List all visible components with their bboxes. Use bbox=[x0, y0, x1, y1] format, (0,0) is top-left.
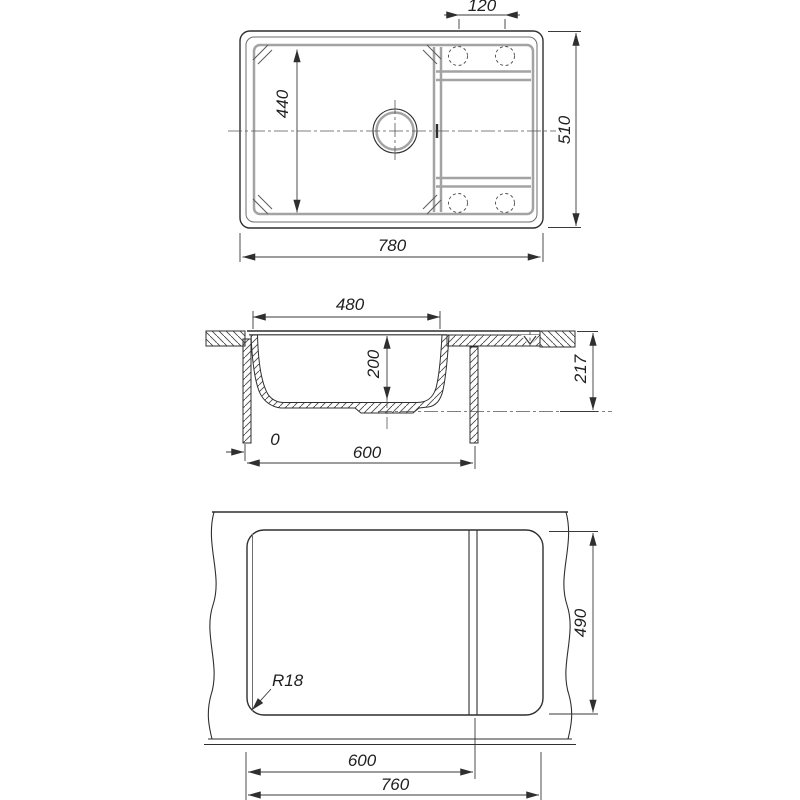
break-line-left bbox=[208, 512, 216, 739]
dim-overall-length: 780 bbox=[240, 233, 543, 262]
countertop-left bbox=[206, 331, 245, 346]
drainboard-grooves bbox=[436, 72, 531, 187]
sink-rim-edge bbox=[246, 37, 537, 222]
dim-zero-offset: 0 bbox=[226, 430, 280, 461]
dim-label-600-fold: 600 bbox=[348, 751, 377, 770]
countertop-right bbox=[540, 331, 575, 347]
bottom-view: R18 490 600 760 bbox=[204, 512, 598, 800]
bowl-section-profile bbox=[251, 335, 449, 413]
cabinet-wall-left bbox=[243, 339, 251, 443]
technical-drawing-canvas: 120 440 510 780 bbox=[0, 0, 800, 800]
dim-label-490: 490 bbox=[571, 608, 590, 637]
dim-label-480: 480 bbox=[336, 295, 365, 314]
sink-outer-contour bbox=[240, 31, 543, 228]
dim-footprint-width: 760 bbox=[248, 752, 541, 800]
dim-label-200: 200 bbox=[364, 349, 383, 379]
dim-label-440: 440 bbox=[273, 89, 292, 118]
dim-fold-width: 600 bbox=[246, 718, 475, 800]
section-view: 480 200 217 0 600 bbox=[206, 295, 612, 469]
dim-label-r18: R18 bbox=[272, 671, 304, 690]
sink-drawing-svg: 120 440 510 780 bbox=[0, 0, 800, 800]
dim-label-760: 760 bbox=[381, 775, 410, 794]
dim-bowl-top-width: 480 bbox=[253, 295, 440, 329]
dim-label-120: 120 bbox=[468, 0, 497, 15]
dim-label-780: 780 bbox=[378, 236, 407, 255]
top-view: 120 440 510 780 bbox=[228, 0, 581, 262]
dim-tap-spacing: 120 bbox=[444, 0, 520, 29]
cabinet-wall-right bbox=[470, 347, 478, 443]
dim-overall-width: 510 bbox=[548, 32, 581, 228]
dim-cabinet-width: 600 bbox=[247, 443, 475, 469]
dim-corner-radius: R18 bbox=[252, 671, 304, 710]
dim-bowl-depth: 200 bbox=[364, 336, 387, 400]
dim-label-510: 510 bbox=[555, 115, 574, 144]
dim-cutout-depth: 490 bbox=[549, 532, 598, 715]
dim-label-600-cabinet: 600 bbox=[353, 443, 382, 462]
dim-label-0: 0 bbox=[270, 430, 280, 449]
dim-label-217: 217 bbox=[571, 354, 590, 384]
